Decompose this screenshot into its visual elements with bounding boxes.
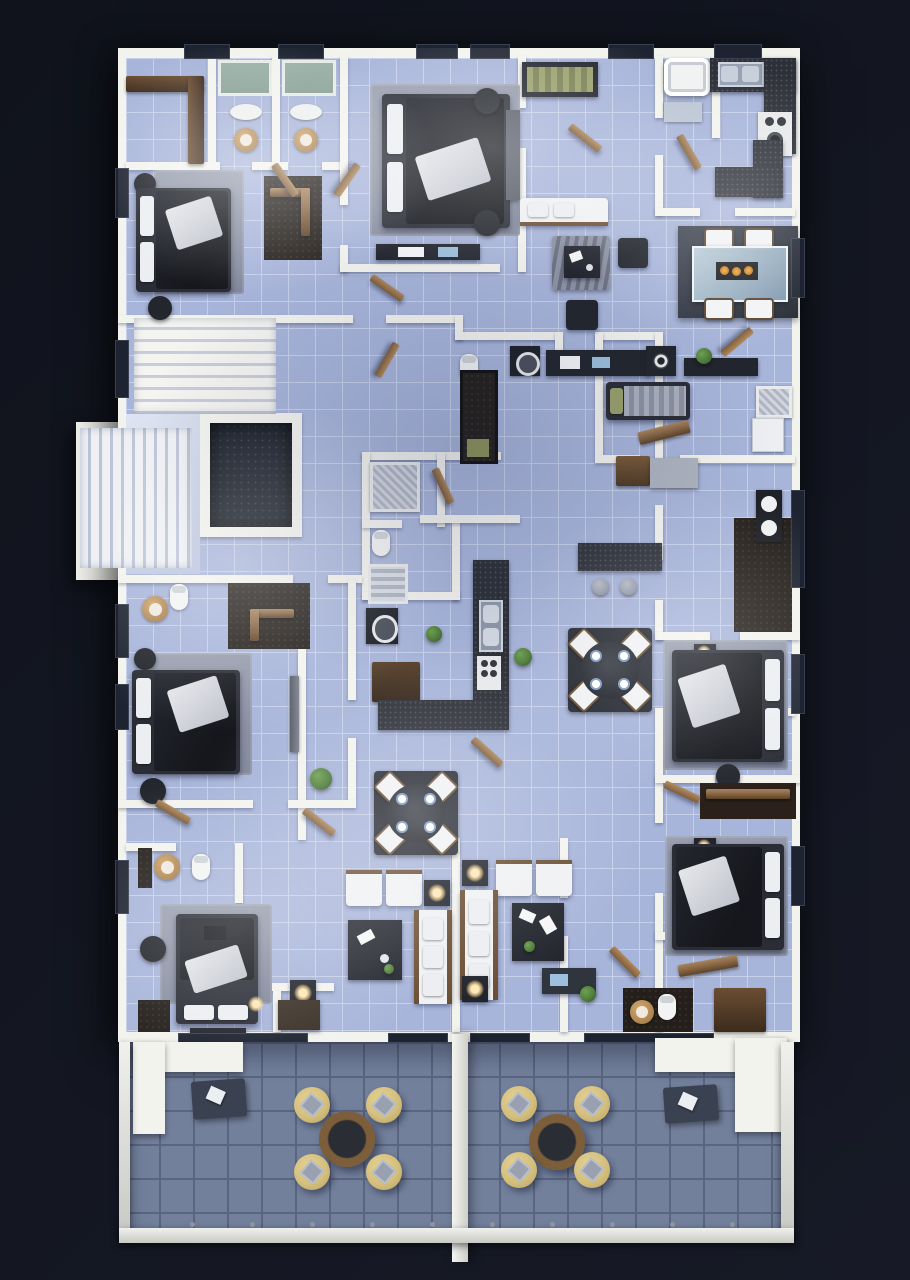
breakfast-bar — [578, 543, 662, 571]
window — [470, 44, 510, 59]
railing-post — [550, 1222, 555, 1227]
armchair-white — [346, 870, 382, 906]
railing-post — [610, 1222, 615, 1227]
master-dresser — [376, 244, 480, 260]
terrace-mat-left — [191, 1078, 248, 1120]
terrace-railing-right — [781, 1042, 794, 1238]
railing-post — [490, 1222, 495, 1227]
wall — [118, 575, 293, 583]
wall — [126, 162, 220, 170]
bedroom2-bed — [132, 670, 240, 774]
window — [791, 238, 805, 298]
terrace-railing-left — [119, 1042, 130, 1238]
wall — [328, 575, 362, 583]
wardrobe-br — [714, 988, 766, 1032]
wall — [288, 800, 356, 808]
hall-cabinet — [372, 662, 420, 702]
wall — [655, 208, 700, 216]
tall-cabinet — [460, 370, 498, 464]
dining-set-left — [368, 765, 464, 861]
wall — [655, 155, 663, 215]
bar-stool — [620, 578, 637, 595]
kitchen-counter-low — [715, 167, 783, 197]
bathroom-tub-right — [282, 60, 336, 96]
washing-machine — [510, 346, 540, 376]
vanity-oval — [230, 104, 262, 120]
wood-basin — [142, 596, 168, 622]
lounge-sofa — [520, 198, 608, 226]
kitchen2-stove — [477, 656, 501, 690]
wall-tv — [290, 676, 299, 752]
wall — [655, 56, 663, 118]
master-nightstand — [474, 88, 500, 114]
bathroom-tub-left — [218, 60, 272, 96]
bedroom5-bed — [176, 914, 258, 1024]
wall — [655, 632, 710, 640]
plant — [426, 626, 442, 642]
dining-chair — [704, 298, 734, 320]
window — [115, 860, 129, 914]
wall — [740, 632, 800, 640]
floor-plan-render — [0, 0, 910, 1280]
terrace-bench-right-side — [735, 1038, 787, 1132]
window — [791, 490, 805, 588]
bedroom5-side-table — [140, 936, 166, 962]
floor-lamp — [248, 996, 264, 1012]
bedroom1-side-table — [148, 296, 172, 320]
shower — [370, 462, 420, 512]
toilet — [170, 584, 188, 610]
wall — [348, 738, 356, 800]
wall — [348, 580, 356, 700]
bedroom1-bed — [136, 188, 231, 292]
wall — [455, 332, 560, 340]
studio-single-bed — [606, 382, 690, 420]
wall — [595, 385, 603, 455]
plant — [580, 986, 596, 1002]
speaker — [646, 346, 676, 376]
railing-post — [730, 1222, 735, 1227]
toilet — [658, 994, 676, 1020]
window — [115, 604, 129, 658]
console-shelf — [684, 358, 758, 376]
wall — [655, 708, 663, 823]
lounge-armchair — [566, 300, 598, 330]
wall — [340, 264, 500, 272]
terrace-mat-right — [663, 1084, 719, 1124]
window — [115, 684, 129, 730]
kitchenette-counter — [546, 350, 650, 376]
railing-post — [250, 1222, 255, 1227]
master-bed — [382, 94, 510, 228]
bathroom-bl-floor — [138, 848, 152, 888]
wall — [208, 56, 216, 170]
terrace-chair — [574, 1086, 610, 1122]
studio-cabinet — [616, 456, 650, 486]
railing-post — [310, 1222, 315, 1227]
staircase-lower-flight — [80, 428, 192, 568]
wall — [595, 332, 655, 340]
elevator — [210, 423, 292, 527]
terrace-railing-bottom — [119, 1228, 794, 1243]
window — [714, 44, 762, 59]
railing-post — [670, 1222, 675, 1227]
bathtub-white — [664, 58, 710, 96]
vanity-oval — [290, 104, 322, 120]
dining-set-center — [562, 622, 658, 718]
kitchen2-counter-horizontal — [378, 700, 509, 730]
wall — [362, 520, 402, 528]
kitchen2-sink — [479, 600, 503, 652]
armchair-white — [496, 860, 532, 896]
building-footprint — [118, 48, 800, 1042]
window — [115, 340, 129, 398]
bl-dark-closet — [138, 1000, 170, 1032]
entry-daybed — [522, 62, 598, 97]
toilet — [192, 854, 210, 880]
window — [791, 654, 805, 714]
lounge-armchair — [618, 238, 648, 268]
window — [416, 44, 458, 59]
kitchen-double-sink — [718, 62, 764, 87]
bedroom4-bed — [672, 844, 784, 950]
terrace-chair — [574, 1152, 610, 1188]
plant — [514, 648, 532, 666]
wall — [272, 56, 280, 170]
sofa-left-room — [414, 910, 452, 1004]
wall — [420, 515, 520, 523]
toilet — [372, 530, 390, 556]
terrace-chair — [294, 1087, 330, 1123]
bedroom2-wardrobe — [228, 583, 310, 649]
wood-basin — [294, 128, 318, 152]
railing-post — [370, 1222, 375, 1227]
coffee-table — [348, 920, 402, 980]
bedroom2-side-table — [134, 648, 156, 670]
bar-stool — [592, 578, 609, 595]
plant — [696, 348, 712, 364]
master-nightstand — [474, 210, 500, 236]
food-platter — [716, 262, 758, 280]
shower-tray — [368, 564, 408, 604]
wardrobe-top-left-side — [188, 76, 204, 164]
wood-basin — [234, 128, 258, 152]
dining-chair — [744, 298, 774, 320]
terrace-chair — [294, 1154, 330, 1190]
window — [608, 44, 654, 59]
laundry-unit — [366, 608, 398, 644]
wardrobe-corridor — [700, 783, 796, 819]
railing-post — [430, 1222, 435, 1227]
armchair-white — [536, 860, 572, 896]
lamp-table — [462, 976, 488, 1002]
coffee-table — [512, 903, 564, 961]
terrace-chair — [501, 1152, 537, 1188]
window — [115, 168, 129, 218]
wall — [452, 838, 460, 1032]
double-vanity — [756, 490, 782, 542]
wood-basin — [154, 854, 180, 880]
wood-basin — [630, 1000, 654, 1024]
terrace-table — [319, 1111, 375, 1167]
wall — [386, 315, 460, 323]
bath-vanity — [664, 102, 702, 122]
staircase-upper-flight — [134, 318, 276, 414]
studio-daybed — [650, 458, 698, 488]
terrace-chair — [366, 1154, 402, 1190]
wall — [118, 800, 253, 808]
shoe-cabinet — [278, 1000, 320, 1030]
window — [278, 44, 324, 59]
terrace-chair — [501, 1086, 537, 1122]
lamp-table — [424, 880, 450, 906]
railing-post — [190, 1222, 195, 1227]
bedroom3-bed — [672, 650, 784, 762]
fridge — [752, 418, 784, 452]
wall — [740, 775, 800, 783]
lamp-table — [462, 860, 488, 886]
window — [791, 846, 805, 906]
closet-bench — [301, 188, 310, 236]
armchair-white — [386, 870, 422, 906]
wall — [235, 843, 243, 903]
wall — [452, 520, 460, 600]
window — [184, 44, 230, 59]
plant — [310, 768, 332, 790]
lounge-coffee-table — [564, 246, 600, 278]
master-bench — [506, 110, 520, 200]
wall — [655, 775, 715, 783]
terrace-bench-left-side — [133, 1042, 165, 1134]
shower — [756, 386, 792, 418]
wall — [735, 208, 795, 216]
terrace-chair — [366, 1087, 402, 1123]
